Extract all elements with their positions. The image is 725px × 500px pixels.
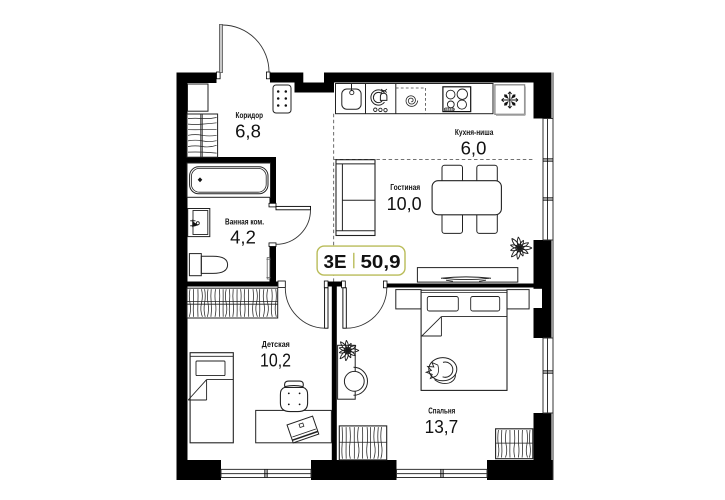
svg-text:3Е: 3Е (324, 251, 347, 272)
svg-text:Спальня: Спальня (428, 406, 455, 416)
svg-text:Кухня-ниша: Кухня-ниша (455, 127, 494, 137)
svg-text:10,2: 10,2 (260, 350, 291, 371)
svg-text:4,2: 4,2 (230, 227, 256, 248)
svg-text:Гостиная: Гостиная (390, 182, 420, 192)
svg-text:Коридор: Коридор (236, 110, 264, 120)
svg-text:Ванная ком.: Ванная ком. (225, 217, 264, 227)
svg-text:6,0: 6,0 (461, 137, 487, 158)
svg-text:6,8: 6,8 (235, 121, 261, 142)
svg-text:Детская: Детская (262, 339, 290, 349)
svg-text:10,0: 10,0 (387, 193, 422, 214)
svg-text:50,9: 50,9 (361, 251, 401, 272)
svg-text:13,7: 13,7 (425, 416, 459, 437)
